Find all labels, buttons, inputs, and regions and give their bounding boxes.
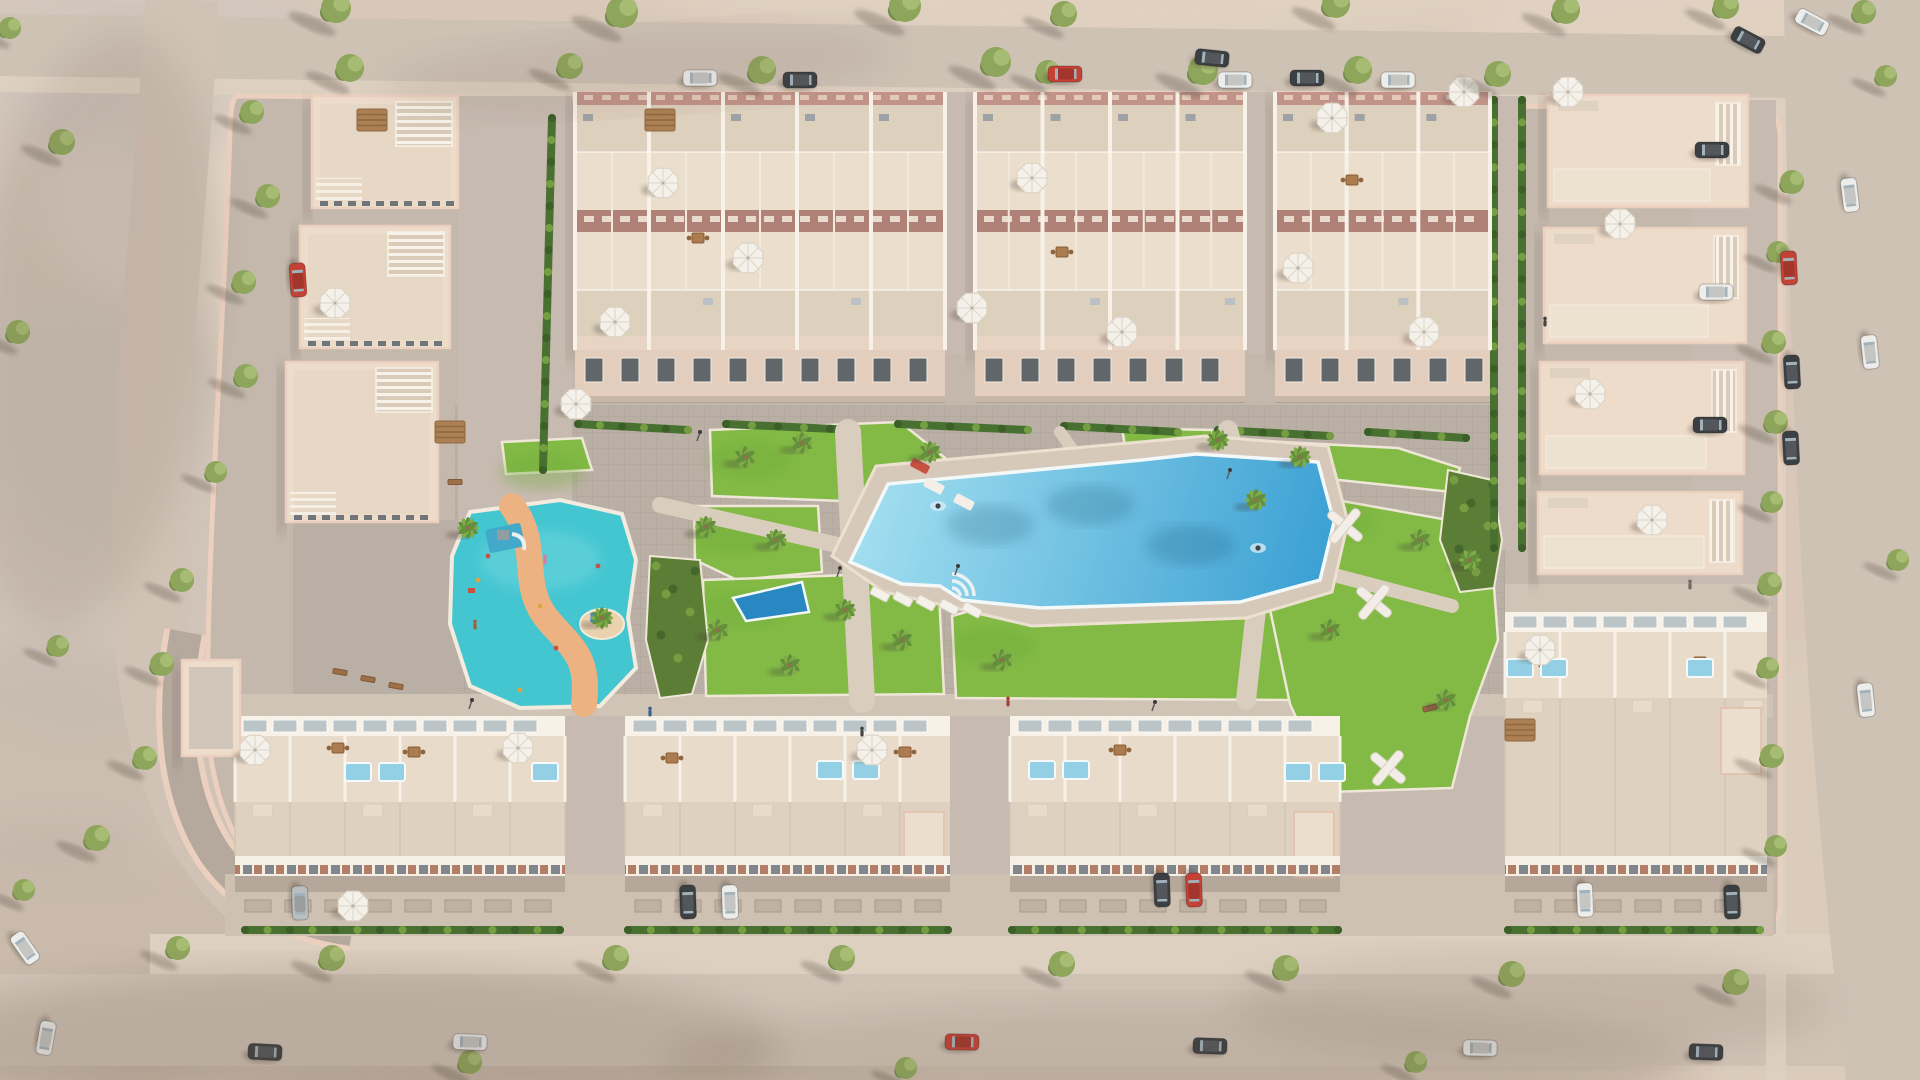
light-overlay xyxy=(0,0,1920,1080)
aerial-site-render xyxy=(0,0,1920,1080)
warm-tint xyxy=(0,0,1920,1080)
render-canvas xyxy=(0,0,1920,1080)
